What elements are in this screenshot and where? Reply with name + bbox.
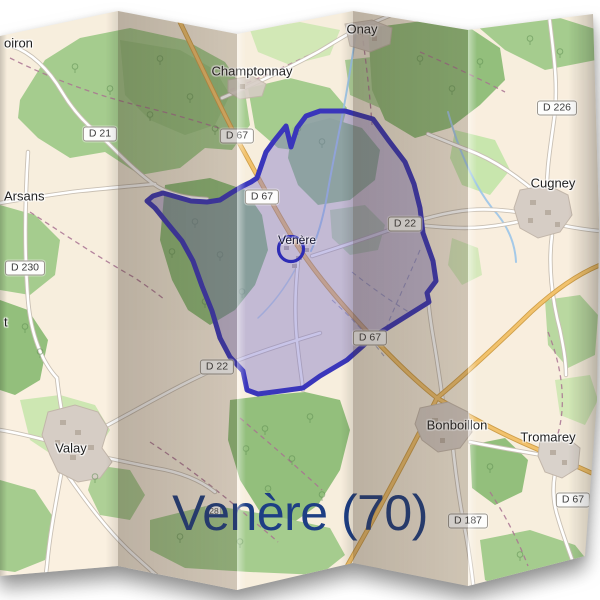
road-shield-d21: D 21 — [83, 127, 117, 142]
town-label-tromarey: Tromarey — [520, 430, 575, 445]
road-shield-d226: D 226 — [537, 101, 577, 116]
folded-map: D 21 D 67 D 226 D 67 D 22 D 230 D 22 D 6… — [0, 0, 600, 600]
map-labels: D 21 D 67 D 226 D 67 D 22 D 230 D 22 D 6… — [0, 0, 600, 600]
road-shield-d67-bottom: D 67 — [556, 493, 590, 508]
town-label-partial-t: t — [4, 315, 8, 330]
road-shield-d22-east: D 22 — [388, 217, 422, 232]
town-label-arsans: Arsans — [4, 189, 44, 204]
map-sheet: D 21 D 67 D 226 D 67 D 22 D 230 D 22 D 6… — [0, 0, 600, 600]
road-shield-d67-lower: D 67 — [353, 331, 387, 346]
town-label-oiron: oiron — [4, 36, 33, 51]
road-shield-d67-mid: D 67 — [245, 190, 279, 205]
road-shield-d230: D 230 — [5, 261, 45, 276]
town-label-onay: Onay — [346, 22, 377, 37]
road-shield-d22-south: D 22 — [200, 360, 234, 375]
town-label-cugney: Cugney — [531, 176, 576, 191]
town-label-champtonnay: Champtonnay — [212, 64, 293, 79]
road-shield-d187: D 187 — [448, 514, 488, 529]
map-title: Venère (70) — [172, 484, 428, 542]
town-label-valay: Valay — [55, 441, 87, 456]
road-shield-d67-top: D 67 — [220, 129, 254, 144]
commune-marker-label: Venère — [278, 233, 316, 247]
map-screenshot: D 21 D 67 D 226 D 67 D 22 D 230 D 22 D 6… — [0, 0, 600, 600]
town-label-bonboillon: Bonboillon — [427, 418, 488, 433]
